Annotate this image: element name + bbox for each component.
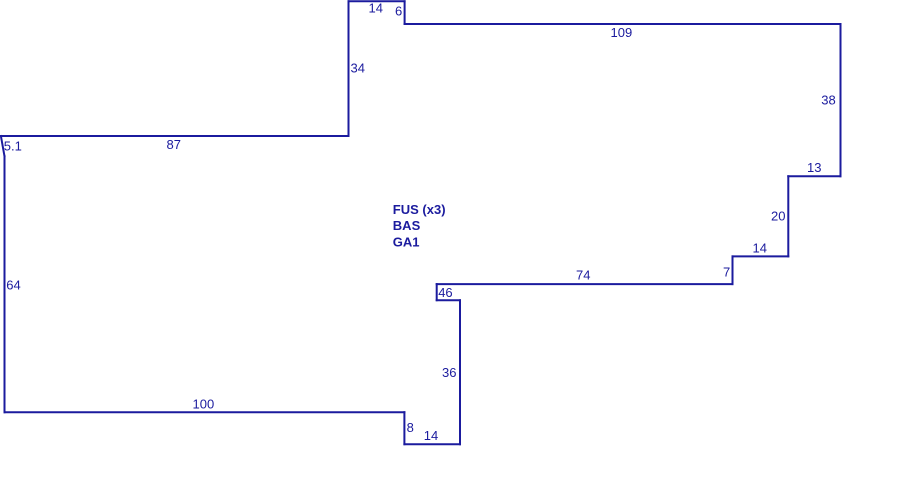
svg-text:8: 8: [407, 420, 414, 435]
svg-text:6: 6: [395, 4, 402, 19]
svg-text:14: 14: [753, 241, 767, 256]
svg-text:64: 64: [6, 277, 20, 292]
svg-text:100: 100: [193, 397, 215, 412]
svg-text:FUS (x3): FUS (x3): [393, 202, 446, 217]
svg-text:36: 36: [442, 365, 456, 380]
svg-text:5.1: 5.1: [4, 139, 22, 154]
svg-text:14: 14: [424, 428, 438, 443]
svg-text:109: 109: [611, 25, 633, 40]
svg-text:74: 74: [576, 268, 590, 283]
svg-text:46: 46: [438, 285, 452, 300]
svg-text:BAS: BAS: [393, 218, 421, 233]
svg-text:20: 20: [771, 209, 785, 224]
svg-text:38: 38: [821, 93, 835, 108]
svg-text:GA1: GA1: [393, 234, 420, 249]
svg-text:87: 87: [167, 137, 181, 152]
svg-text:14: 14: [369, 1, 383, 16]
svg-text:7: 7: [723, 264, 730, 279]
svg-text:13: 13: [807, 160, 821, 175]
svg-text:34: 34: [351, 61, 365, 76]
